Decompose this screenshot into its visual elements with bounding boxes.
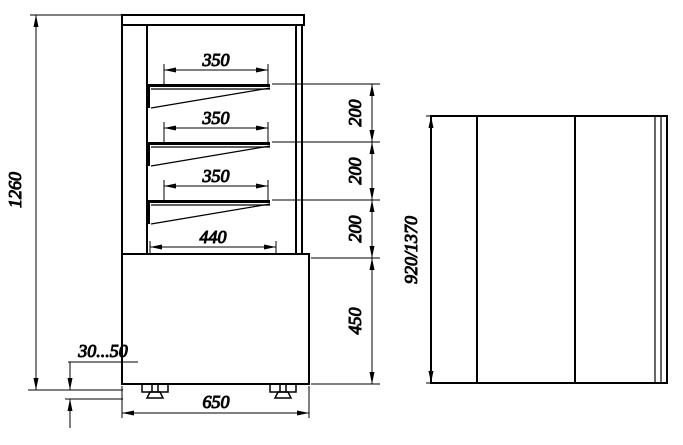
technical-drawing-page: 1260 30...50 650 [0,0,683,445]
shelf-3 [147,200,270,224]
shelf-3-diagonal-support [151,204,270,224]
dim-label-650: 650 [203,392,230,412]
dim-label-200: 200 [345,216,365,243]
arrowhead-right [264,245,276,250]
arrowhead-right [256,184,268,189]
shelf-1-wall-bracket [147,84,150,108]
arrowhead-down [370,188,375,200]
arrowhead-up [370,200,375,212]
foot-left-pad [147,392,163,398]
dim-label-920-1370: 920/1370 [401,216,421,284]
dim-shelf-width-2: 350 [164,108,268,144]
dim-label-350: 350 [202,50,230,70]
foot-right-pad [275,392,291,398]
arrowhead-up [370,258,375,270]
foot-left [142,384,168,398]
base-cabinet [122,254,309,384]
arrowhead-left [164,184,176,189]
arrowhead-up [429,116,434,128]
shelf-2-wall-bracket [147,142,150,166]
arrowhead-right [256,126,268,131]
arrowhead-down [370,246,375,258]
arrowhead-right [297,411,309,416]
dim-label-350: 350 [202,166,230,186]
arrowhead-up [34,15,39,27]
dim-base-width: 650 [122,386,309,418]
arrowhead-down [429,371,434,383]
dim-label-450: 450 [345,308,365,335]
dimensions: 1260 30...50 650 [5,15,434,428]
shelf-1 [147,84,270,108]
dim-bottom-shelf-width: 440 [150,227,276,254]
foot-right [270,384,296,398]
arrowhead-down [370,130,375,142]
dim-label-200: 200 [345,100,365,127]
display-case-technical-drawing: 1260 30...50 650 [0,0,683,445]
shelves [147,84,270,224]
arrowhead-down [34,378,39,390]
top-cap [122,15,304,25]
arrowhead-left [122,411,134,416]
shelf-1-surface [147,84,270,87]
shelf-2 [147,142,270,166]
foot-right-block [270,384,296,392]
dim-total-height: 1260 [5,15,122,390]
dim-label-350: 350 [202,108,230,128]
dim-label-440: 440 [200,227,227,247]
arrowhead-left [150,245,162,250]
arrowhead-up [68,399,73,411]
arrowhead-left [164,68,176,73]
arrowhead-up [370,84,375,96]
dim-label-30-50: 30...50 [77,341,128,361]
arrowhead-down [68,378,73,390]
dim-label-1260: 1260 [5,172,25,208]
arrowhead-right [256,68,268,73]
dim-side-height: 920/1370 [401,116,434,383]
dim-shelf-width-1: 350 [164,50,268,86]
shelf-2-diagonal-support [151,146,270,166]
shelf-1-diagonal-support [151,88,270,108]
shelf-3-surface [147,200,270,203]
dim-shelf-gaps-and-base: 200 200 200 450 [272,84,380,384]
foot-left-block [142,384,168,392]
arrowhead-down [370,372,375,384]
shelf-2-surface [147,142,270,145]
side-view-body [431,116,667,383]
dim-label-200: 200 [345,158,365,185]
arrowhead-up [370,142,375,154]
dim-shelf-width-3: 350 [164,166,268,202]
arrowhead-left [164,126,176,131]
side-view [426,116,667,383]
shelf-3-wall-bracket [147,200,150,224]
